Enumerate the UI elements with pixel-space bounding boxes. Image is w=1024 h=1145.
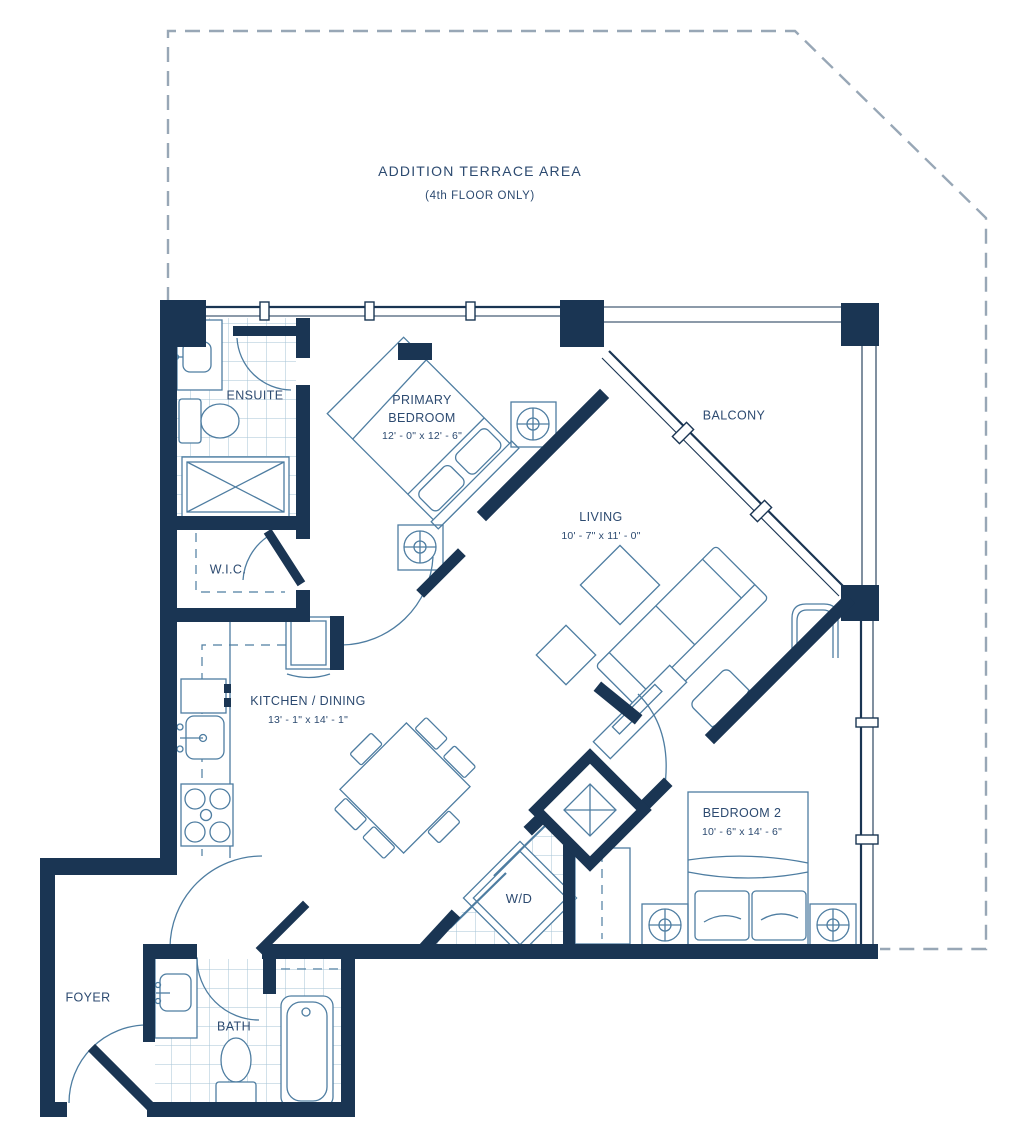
room-label-wd: W/D: [506, 890, 532, 908]
side-table-icon: [536, 625, 595, 684]
room-label-balcony: BALCONY: [703, 407, 766, 425]
kitchen-fixtures: [177, 617, 331, 858]
ensuite-name: ENSUITE: [227, 387, 284, 405]
coffee-table-icon: [580, 545, 659, 624]
room-label-ensuite: ENSUITE: [227, 387, 284, 405]
kitchen-sink-icon: [177, 716, 224, 759]
balcony-name: BALCONY: [703, 407, 766, 425]
primary-bedroom-dims: 12' - 0" x 12' - 6": [366, 429, 478, 444]
floor-plan: ADDITION TERRACE AREA (4th FLOOR ONLY) E…: [0, 0, 1024, 1145]
wd-name: W/D: [506, 890, 532, 908]
bathtub-icon: [281, 996, 333, 1107]
primary-nightstand-lamp-2: [398, 525, 443, 570]
living-dims: 10' - 7" x 11' - 0": [561, 528, 640, 543]
terrace-area-subtitle: (4th FLOOR ONLY): [425, 188, 535, 204]
shower-icon: [182, 457, 289, 517]
room-label-wic: W.I.C.: [210, 561, 246, 579]
terrace-area-title: ADDITION TERRACE AREA: [378, 162, 582, 182]
room-label-bedroom2: BEDROOM 2 10' - 6" x 14' - 6": [702, 805, 782, 839]
bedroom2-nightstand-lamp-1: [642, 904, 688, 946]
living-name: LIVING: [561, 509, 640, 527]
wic-name: W.I.C.: [210, 561, 246, 579]
room-label-primary-bedroom: PRIMARY BEDROOM 12' - 0" x 12' - 6": [366, 392, 478, 444]
kitchen-dining-dims: 13' - 1" x 14' - 1": [250, 712, 365, 727]
foyer-name: FOYER: [65, 989, 110, 1007]
bedroom2-dims: 10' - 6" x 14' - 6": [702, 824, 782, 839]
kitchen-dining-name: KITCHEN / DINING: [250, 693, 365, 711]
room-label-foyer: FOYER: [65, 989, 110, 1007]
room-label-bath: BATH: [217, 1018, 251, 1036]
room-label-kitchen-dining: KITCHEN / DINING 13' - 1" x 14' - 1": [250, 693, 365, 727]
stove-icon: [181, 784, 233, 846]
room-label-living: LIVING 10' - 7" x 11' - 0": [561, 509, 640, 543]
bedroom2-nightstand-lamp-2: [810, 904, 856, 946]
fridge-icon: [286, 617, 331, 678]
primary-bedroom-name: PRIMARY BEDROOM: [366, 392, 478, 427]
bath-name: BATH: [217, 1018, 251, 1036]
bedroom2-name: BEDROOM 2: [702, 805, 782, 823]
oven-icon: [181, 679, 231, 713]
